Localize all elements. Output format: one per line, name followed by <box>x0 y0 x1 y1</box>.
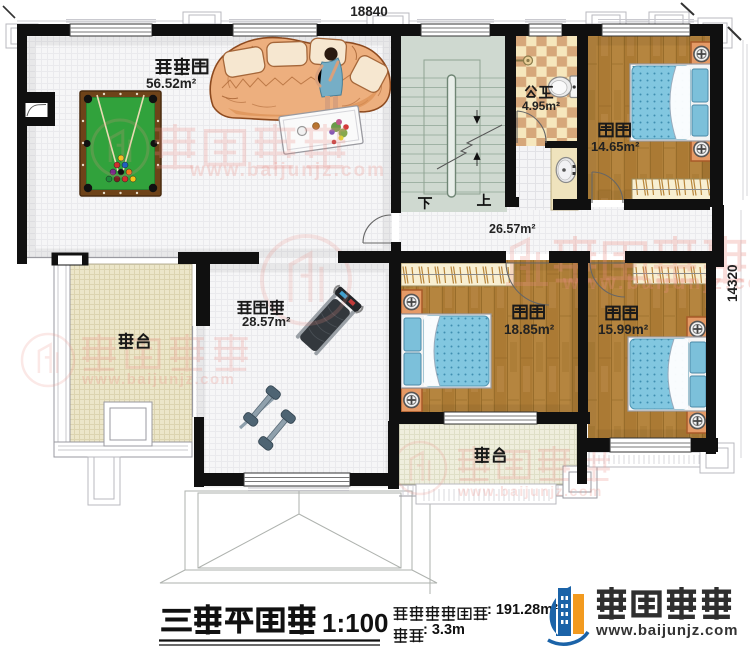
svg-text:14.65m²: 14.65m² <box>591 139 640 154</box>
svg-text:26.57m²: 26.57m² <box>489 222 536 236</box>
svg-text:18840: 18840 <box>350 4 388 19</box>
svg-text:www.baijunjz.com: www.baijunjz.com <box>81 371 235 388</box>
svg-text:: 191.28m²: : 191.28m² <box>487 602 558 618</box>
svg-text:56.52m²: 56.52m² <box>146 76 197 91</box>
svg-text:1:100: 1:100 <box>322 608 389 638</box>
svg-text:www.baijunjz.com: www.baijunjz.com <box>595 622 738 639</box>
svg-text:14320: 14320 <box>725 264 740 302</box>
svg-text:www.baijunjz.com: www.baijunjz.com <box>189 160 386 181</box>
svg-text:4.95m²: 4.95m² <box>522 99 560 113</box>
svg-text:www.baijunjz.com: www.baijunjz.com <box>457 483 603 499</box>
svg-text:28.57m²: 28.57m² <box>242 314 291 329</box>
svg-text:18.85m²: 18.85m² <box>504 322 555 337</box>
svg-text:: 3.3m: : 3.3m <box>423 622 465 638</box>
svg-text:www.baijunjz.com: www.baijunjz.com <box>562 272 750 294</box>
svg-text:15.99m²: 15.99m² <box>598 322 649 337</box>
